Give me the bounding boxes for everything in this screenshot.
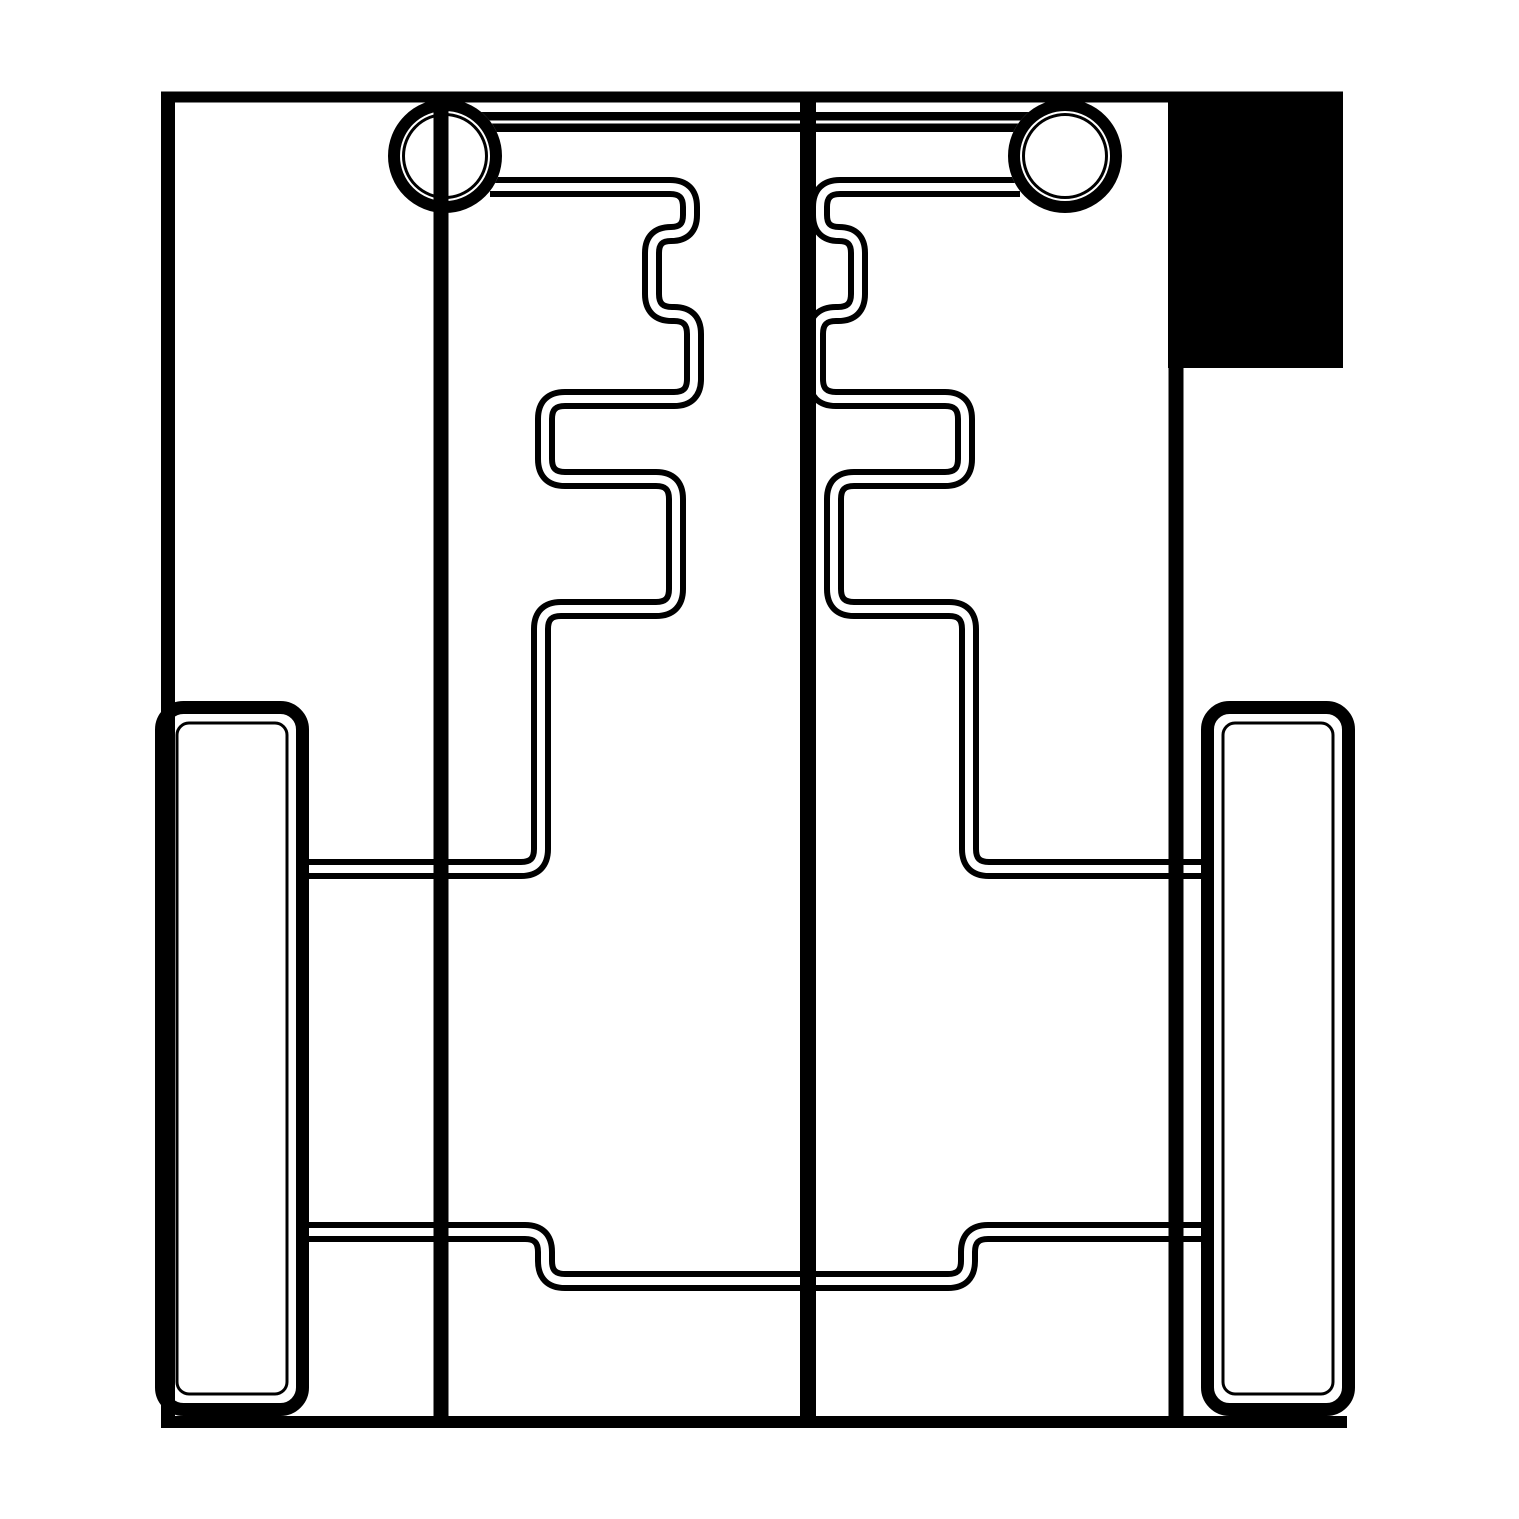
left-skid-rect-outer — [162, 708, 303, 1410]
right-skid-rect-inner — [1223, 723, 1333, 1394]
drawing-page — [0, 0, 1519, 1519]
right-step-profile-outer — [816, 187, 1208, 869]
pocket-fill-rect — [1168, 92, 1343, 368]
left-skid-rect-inner — [177, 723, 287, 1394]
left-step-profile-outer — [302, 187, 694, 869]
diagram-canvas — [0, 0, 1519, 1519]
right-skid-rect-outer — [1208, 708, 1349, 1410]
right-step-profile-inner-gap — [816, 187, 1208, 869]
left-step-profile-inner-gap — [302, 187, 694, 869]
